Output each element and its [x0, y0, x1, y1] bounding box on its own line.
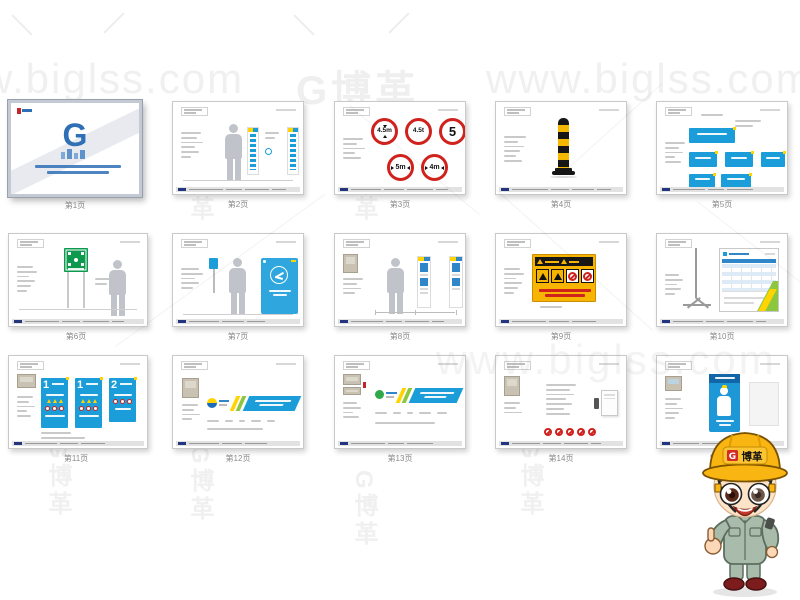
photo-thumbnail: [343, 374, 361, 385]
person-silhouette: [109, 260, 126, 316]
slide-thumbnail-8[interactable]: [334, 233, 466, 327]
sign-panel: [417, 256, 431, 308]
slide-thumbnail-10[interactable]: [656, 233, 788, 327]
watermark-text-overlay: www.biglss.com: [436, 336, 777, 384]
warning-placard: [532, 254, 596, 302]
blue-signboard: [761, 152, 785, 167]
slide-caption: 第11页: [10, 454, 142, 464]
watermark-text: www.biglss.com: [486, 55, 800, 103]
slide-art: [173, 356, 303, 448]
watermark-line: [103, 12, 124, 33]
blue-signboard: [721, 174, 751, 188]
small-blue-sign: [209, 258, 218, 269]
photo-thumbnail: [343, 387, 361, 395]
blue-signboard: [725, 152, 753, 167]
watermark-line: [293, 14, 314, 35]
weight-limit-sign: 4.5t: [405, 118, 432, 145]
slide-thumbnail-5[interactable]: [656, 101, 788, 195]
blue-signboard: [689, 152, 717, 167]
smoking-area-poster: [261, 258, 298, 314]
speed-limit-sign: 5: [439, 118, 465, 145]
safety-poster: 2: [109, 378, 136, 422]
sign-panel: [247, 127, 259, 175]
slide-caption: 第14页: [495, 454, 627, 464]
watermark-logo-vertical: G博革: [512, 440, 547, 519]
watermark-line: [388, 12, 409, 33]
slide-art: [496, 102, 626, 194]
slide-thumbnail-11[interactable]: 1 1: [8, 355, 148, 449]
mascot-helmet-text: 博革: [742, 450, 763, 463]
sign-panel: [449, 256, 463, 308]
width-limit-sign: 5m: [387, 154, 414, 181]
safety-poster: 1: [41, 378, 68, 428]
slide-art: G: [11, 103, 139, 194]
slide-thumbnail-6[interactable]: [8, 233, 148, 327]
height-limit-sign: 4.5m: [371, 118, 398, 145]
watermark-logo-vertical: G博革: [40, 440, 75, 519]
slide-art: 1 1: [9, 356, 147, 448]
slide-thumbnail-7[interactable]: [172, 233, 304, 327]
mascot-helmet-glyph: G: [729, 452, 736, 462]
slide-caption: 第13页: [334, 454, 466, 464]
blue-signboard: [689, 174, 715, 188]
photo-thumbnail: [182, 378, 199, 398]
slide-art: [335, 234, 465, 326]
dispenser-object: [594, 398, 599, 409]
slide-thumbnail-1[interactable]: G: [8, 100, 142, 197]
slide-thumbnail-12[interactable]: [172, 355, 304, 449]
person-silhouette: [387, 258, 404, 314]
slide-art: [173, 234, 303, 326]
watermark-line: [11, 14, 32, 35]
slide-art: [173, 102, 303, 194]
slide-caption: 第1页: [9, 201, 141, 211]
slide-caption: 第12页: [172, 454, 304, 464]
slide-caption: 第5页: [656, 200, 788, 210]
slide-caption: 第2页: [172, 200, 304, 210]
sign-panel: [287, 127, 299, 175]
blue-signboard: [689, 128, 735, 143]
mascot: G 博革: [688, 420, 800, 600]
slide-thumbnail-4[interactable]: [495, 101, 627, 195]
slide-caption: 第3页: [334, 200, 466, 210]
watermark-logo-vertical: G博革: [346, 470, 381, 549]
slide-thumbnail-2[interactable]: [172, 101, 304, 195]
safety-poster: 1: [75, 378, 102, 428]
person-silhouette: [229, 258, 246, 314]
slide-art: [657, 102, 787, 194]
slide-caption: 第7页: [172, 332, 304, 342]
photo-thumbnail: [17, 374, 36, 388]
page: w.biglss.com G博革 www.biglss.com G博革 G博革 …: [0, 0, 800, 600]
photo-thumbnail: [343, 254, 358, 273]
prohibition-icon-row: [544, 428, 596, 436]
slide-art: [657, 234, 787, 326]
watermark-text: w.biglss.com: [0, 55, 244, 103]
wall-board: [601, 390, 618, 416]
person-silhouette: [225, 124, 242, 180]
slide-art: [9, 234, 147, 326]
